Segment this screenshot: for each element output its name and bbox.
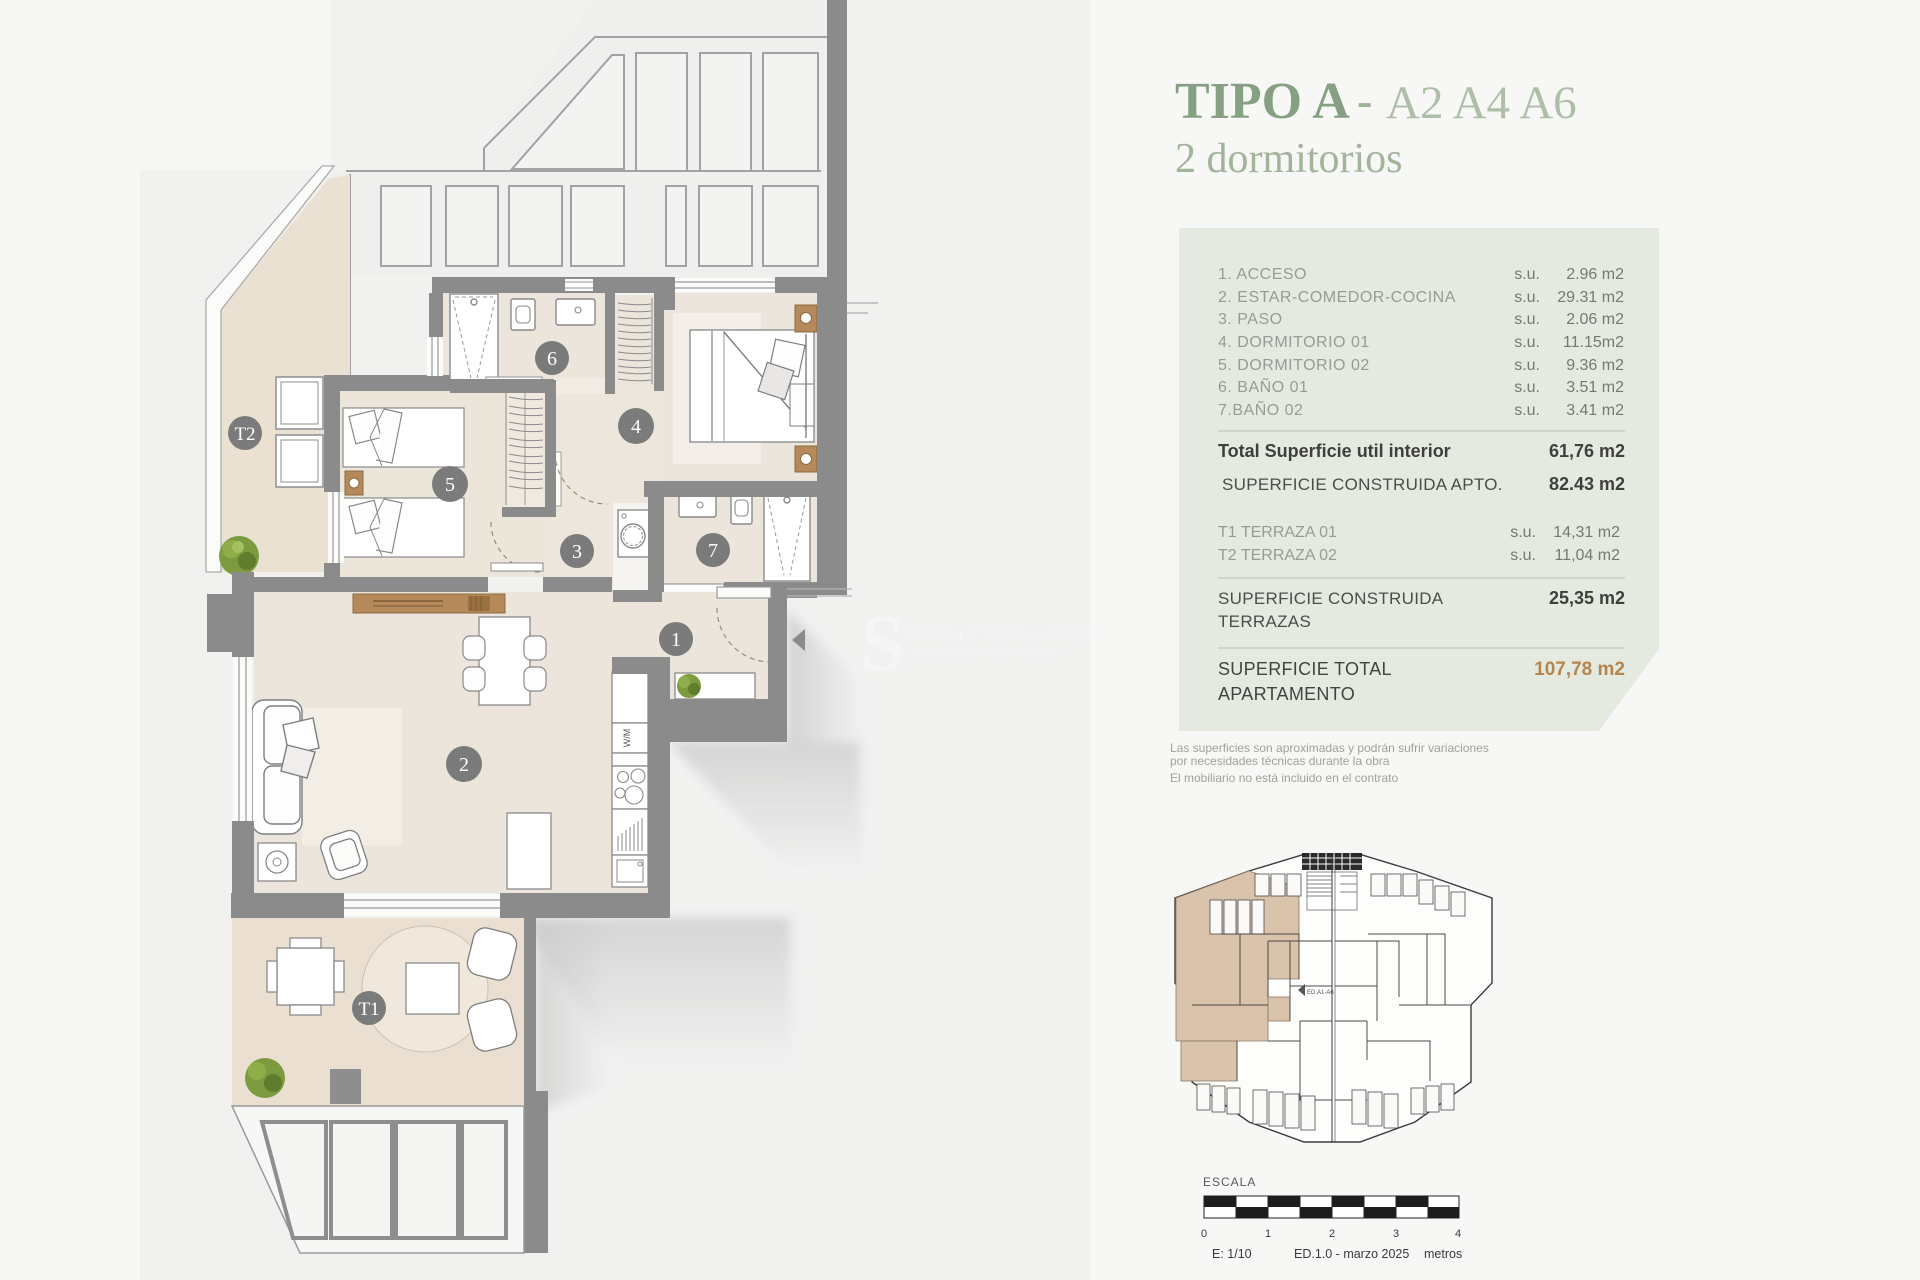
svg-text:2. ESTAR-COMEDOR-COCINA: 2. ESTAR-COMEDOR-COCINA xyxy=(1218,289,1456,306)
svg-text:SUPERFICIE CONSTRUIDA APTO.: SUPERFICIE CONSTRUIDA APTO. xyxy=(1222,475,1503,494)
svg-text:ED.A1-A6: ED.A1-A6 xyxy=(1307,990,1334,996)
svg-text:2: 2 xyxy=(1329,1228,1335,1240)
svg-text:11.15m2: 11.15m2 xyxy=(1563,334,1624,351)
svg-text:s.u.: s.u. xyxy=(1514,311,1540,328)
svg-text:3.41 m2: 3.41 m2 xyxy=(1566,402,1624,419)
svg-text:1. ACCESO: 1. ACCESO xyxy=(1218,266,1307,283)
svg-text:T1 TERRAZA 01: T1 TERRAZA 01 xyxy=(1218,524,1337,541)
svg-text:1: 1 xyxy=(1265,1228,1271,1240)
svg-text:Las superficies son aproximada: Las superficies son aproximadas y podrán… xyxy=(1170,741,1489,755)
svg-text:TERRAZAS: TERRAZAS xyxy=(1218,612,1311,631)
svg-text:T2: T2 xyxy=(234,424,255,445)
svg-text:6. BAÑO 01: 6. BAÑO 01 xyxy=(1218,376,1308,396)
svg-text:7: 7 xyxy=(708,540,718,562)
svg-text:ED.1.0 - marzo 2025: ED.1.0 - marzo 2025 xyxy=(1294,1247,1409,1261)
svg-text:107,78 m2: 107,78 m2 xyxy=(1534,659,1625,680)
svg-text:3: 3 xyxy=(572,541,582,563)
svg-text:s.u.: s.u. xyxy=(1514,266,1540,283)
svg-text:T2 TERRAZA 02: T2 TERRAZA 02 xyxy=(1218,547,1337,564)
svg-text:Sterling Property Listings: Sterling Property Listings xyxy=(905,623,1094,642)
svg-text:25,35 m2: 25,35 m2 xyxy=(1549,588,1625,608)
svg-text:A2 A4 A6: A2 A4 A6 xyxy=(1386,77,1577,129)
svg-text:61,76 m2: 61,76 m2 xyxy=(1549,441,1625,461)
svg-text:3. PASO: 3. PASO xyxy=(1218,311,1283,328)
svg-text:4: 4 xyxy=(631,416,641,438)
svg-text:S: S xyxy=(860,600,905,688)
svg-text:2: 2 xyxy=(459,754,469,776)
svg-text:TIPO A: TIPO A xyxy=(1175,73,1350,130)
svg-text:El mobiliario no está incluido: El mobiliario no está incluido en el con… xyxy=(1170,771,1398,785)
svg-text:W/M: W/M xyxy=(622,729,632,748)
svg-text:14,31 m2: 14,31 m2 xyxy=(1553,524,1620,541)
svg-text:5: 5 xyxy=(445,474,455,496)
svg-text:s.u.: s.u. xyxy=(1514,334,1540,351)
svg-text:6: 6 xyxy=(547,348,557,370)
svg-text:s.u.: s.u. xyxy=(1514,379,1540,396)
svg-text:11,04 m2: 11,04 m2 xyxy=(1554,547,1620,564)
svg-text:s.u.: s.u. xyxy=(1514,402,1540,419)
svg-text:1: 1 xyxy=(671,629,681,651)
svg-text:4: 4 xyxy=(1455,1228,1461,1240)
svg-text:5. DORMITORIO 02: 5. DORMITORIO 02 xyxy=(1218,357,1370,374)
svg-text:APARTAMENTO: APARTAMENTO xyxy=(1218,684,1355,704)
svg-text:E: 1/10: E: 1/10 xyxy=(1212,1247,1252,1261)
svg-text:T1: T1 xyxy=(358,999,379,1020)
svg-text:s.u.: s.u. xyxy=(1510,547,1536,564)
svg-text:metros: metros xyxy=(1424,1247,1462,1261)
svg-text:SUPERFICIE TOTAL: SUPERFICIE TOTAL xyxy=(1218,659,1392,679)
svg-text:-: - xyxy=(1357,75,1372,126)
svg-text:2.96 m2: 2.96 m2 xyxy=(1566,266,1624,283)
svg-text:29.31 m2: 29.31 m2 xyxy=(1557,289,1624,306)
svg-text:2 dormitorios: 2 dormitorios xyxy=(1175,136,1403,182)
svg-text:por necesidades técnicas duran: por necesidades técnicas durante la obra xyxy=(1170,754,1390,768)
svg-text:3.51 m2: 3.51 m2 xyxy=(1566,379,1624,396)
svg-text:9.36 m2: 9.36 m2 xyxy=(1566,357,1624,374)
svg-text:82.43 m2: 82.43 m2 xyxy=(1549,474,1625,494)
svg-text:s.u.: s.u. xyxy=(1514,289,1540,306)
svg-text:s.u.: s.u. xyxy=(1510,524,1536,541)
svg-text:3: 3 xyxy=(1393,1228,1399,1240)
svg-text:2.06 m2: 2.06 m2 xyxy=(1566,311,1624,328)
svg-text:ESCALA: ESCALA xyxy=(1203,1175,1256,1189)
svg-text:Total Superficie util interior: Total Superficie util interior xyxy=(1218,441,1451,461)
svg-text:exclusive and luxury homes: exclusive and luxury homes xyxy=(910,646,1057,660)
svg-text:4. DORMITORIO 01: 4. DORMITORIO 01 xyxy=(1218,334,1370,351)
svg-text:s.u.: s.u. xyxy=(1514,357,1540,374)
svg-text:0: 0 xyxy=(1201,1228,1207,1240)
svg-text:SUPERFICIE CONSTRUIDA: SUPERFICIE CONSTRUIDA xyxy=(1218,589,1444,608)
svg-text:7.BAÑO 02: 7.BAÑO 02 xyxy=(1218,399,1303,419)
